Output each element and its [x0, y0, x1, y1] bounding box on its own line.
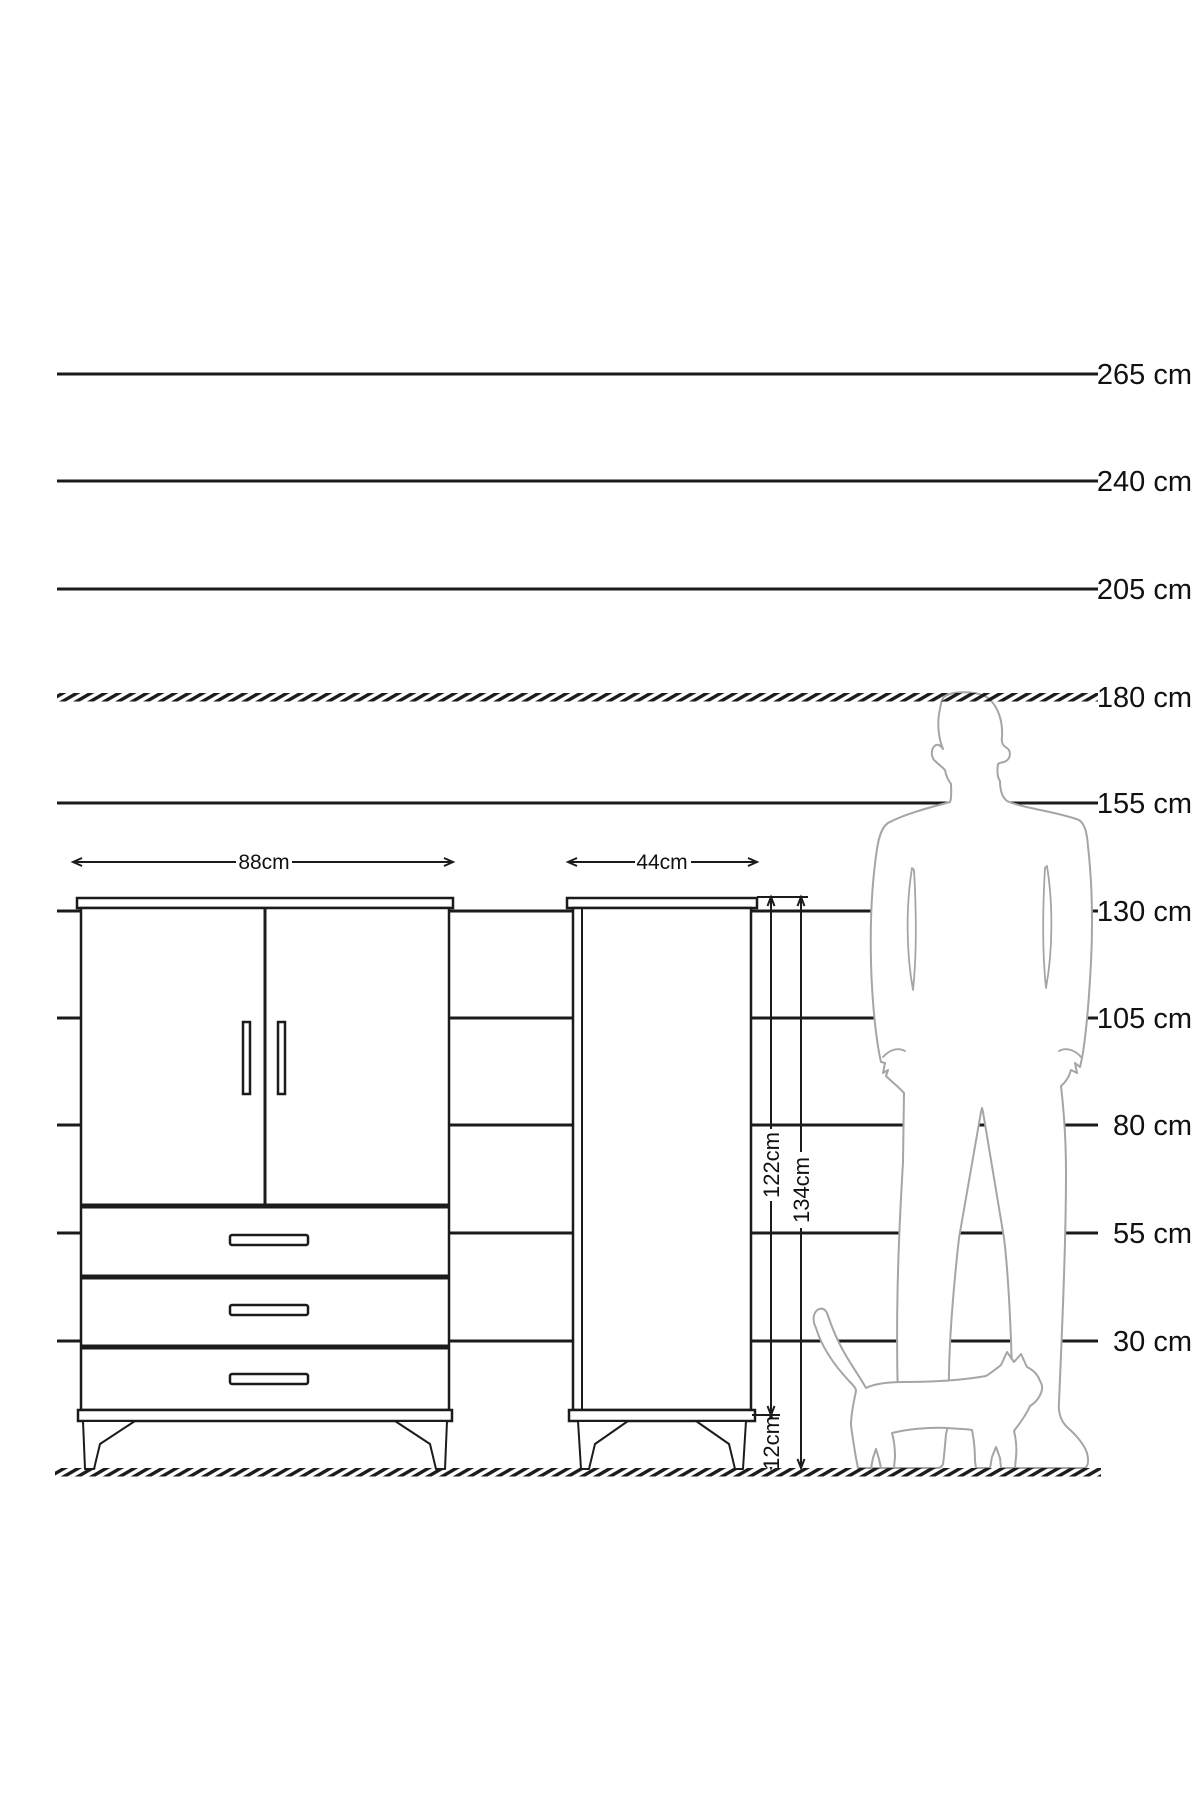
ruler-label-130: 130 cm [1097, 896, 1192, 928]
ruler-label-265: 265 cm [1097, 359, 1192, 391]
ruler-label-205: 205 cm [1097, 574, 1192, 606]
ruler-label-105: 105 cm [1097, 1003, 1192, 1035]
ruler-label-240: 240 cm [1097, 466, 1192, 498]
floor-hatch-line [55, 1468, 1101, 1477]
cabinet-bottom-board [569, 1410, 755, 1421]
ruler-label-30: 30 cm [1113, 1326, 1192, 1358]
furniture-height-diagram: 265 cm 240 cm 205 cm 180 cm 155 cm 130 c… [0, 0, 1200, 1800]
wardrobe-width-label: 88cm [238, 851, 289, 874]
right-door-handle [278, 1022, 285, 1094]
ruler-label-80: 80 cm [1113, 1110, 1192, 1142]
drawer-handle [230, 1305, 308, 1315]
side-cabinet [567, 898, 757, 1469]
left-door-handle [243, 1022, 250, 1094]
drawer-handle [230, 1374, 308, 1384]
wall-hatch-line-180 [57, 693, 1098, 702]
cabinet-width-label: 44cm [636, 851, 687, 874]
furniture-height-diagram-page: 265 cm 240 cm 205 cm 180 cm 155 cm 130 c… [0, 0, 1200, 1800]
ruler-label-155: 155 cm [1097, 788, 1192, 820]
cabinet-body [573, 908, 751, 1410]
height-dimension-12: 12cm [758, 1415, 784, 1470]
cabinet-leg-height-label: 12cm [759, 1416, 784, 1470]
cabinet-total-height-label: 134cm [789, 1157, 814, 1223]
drawer-handle [230, 1235, 308, 1245]
wardrobe-top-board [77, 898, 453, 908]
ruler-label-180: 180 cm [1097, 682, 1192, 714]
cabinet-top-board [567, 898, 757, 908]
wardrobe [77, 898, 453, 1469]
ruler-label-55: 55 cm [1113, 1218, 1192, 1250]
wardrobe-bottom-board [78, 1410, 452, 1421]
cabinet-body-height-label: 122cm [759, 1132, 784, 1198]
